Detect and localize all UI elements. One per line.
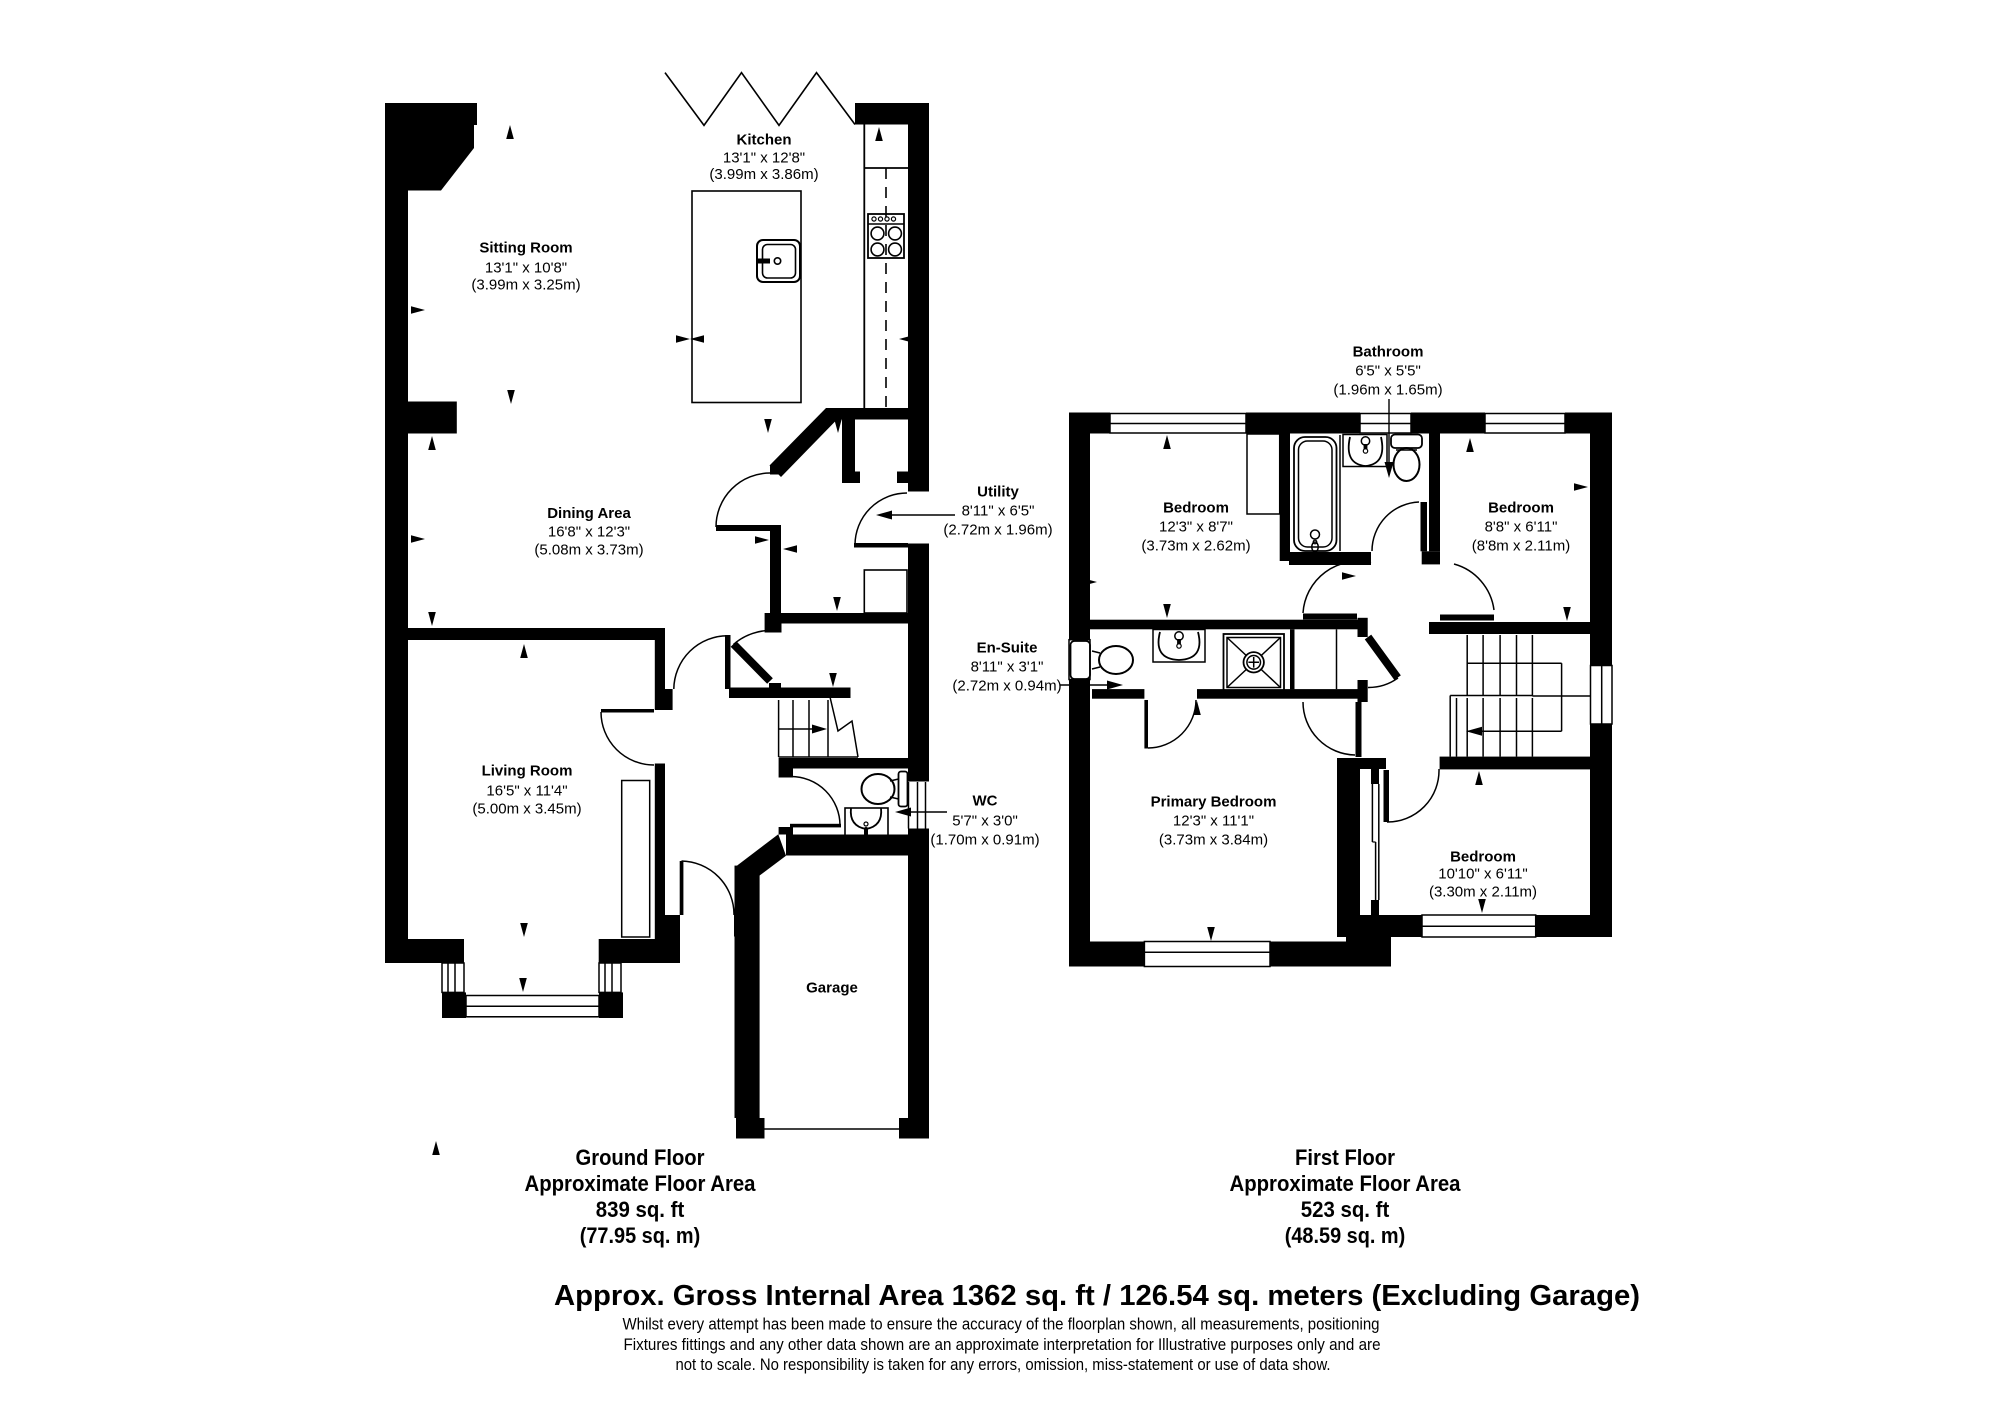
svg-text:8'11" x 6'5": 8'11" x 6'5" xyxy=(962,503,1035,520)
svg-text:16'5" x 11'4": 16'5" x 11'4" xyxy=(486,783,567,800)
svg-text:12'3" x 8'7": 12'3" x 8'7" xyxy=(1159,519,1233,536)
svg-text:Bedroom: Bedroom xyxy=(1163,500,1229,517)
svg-text:First Floor: First Floor xyxy=(1295,1145,1395,1170)
svg-text:En-Suite: En-Suite xyxy=(977,640,1038,657)
svg-text:(1.70m x 0.91m): (1.70m x 0.91m) xyxy=(930,832,1039,849)
svg-text:(3.99m x 3.86m): (3.99m x 3.86m) xyxy=(709,166,818,183)
svg-text:(5.08m x 3.73m): (5.08m x 3.73m) xyxy=(534,542,643,559)
svg-text:Approximate Floor Area: Approximate Floor Area xyxy=(525,1171,757,1196)
svg-text:13'1" x 10'8": 13'1" x 10'8" xyxy=(485,260,567,277)
svg-text:523 sq. ft: 523 sq. ft xyxy=(1301,1197,1390,1222)
svg-text:12'3" x 11'1": 12'3" x 11'1" xyxy=(1173,813,1254,830)
svg-text:Ground Floor: Ground Floor xyxy=(576,1145,705,1170)
svg-text:(3.73m x 3.84m): (3.73m x 3.84m) xyxy=(1159,832,1268,849)
svg-text:(3.30m x 2.11m): (3.30m x 2.11m) xyxy=(1429,884,1537,901)
svg-text:Bedroom: Bedroom xyxy=(1488,500,1554,517)
svg-text:Dining Area: Dining Area xyxy=(547,505,631,522)
svg-text:(3.73m x 2.62m): (3.73m x 2.62m) xyxy=(1141,538,1250,555)
svg-text:16'8" x 12'3": 16'8" x 12'3" xyxy=(548,524,630,541)
svg-text:10'10" x 6'11": 10'10" x 6'11" xyxy=(1438,866,1528,883)
svg-text:8'8" x 6'11": 8'8" x 6'11" xyxy=(1485,519,1558,536)
svg-text:6'5" x 5'5": 6'5" x 5'5" xyxy=(1355,363,1421,380)
svg-text:(2.72m x 0.94m): (2.72m x 0.94m) xyxy=(952,678,1061,695)
svg-text:(77.95 sq. m): (77.95 sq. m) xyxy=(580,1223,701,1248)
svg-text:Utility: Utility xyxy=(977,484,1019,501)
svg-text:13'1" x 12'8": 13'1" x 12'8" xyxy=(723,150,805,167)
svg-text:839 sq. ft: 839 sq. ft xyxy=(596,1197,685,1222)
svg-text:Sitting Room: Sitting Room xyxy=(479,240,572,257)
svg-text:Bedroom: Bedroom xyxy=(1450,849,1516,866)
svg-text:Fixtures fittings and any othe: Fixtures fittings and any other data sho… xyxy=(624,1336,1381,1354)
svg-text:Garage: Garage xyxy=(806,980,858,997)
svg-text:Primary Bedroom: Primary Bedroom xyxy=(1151,794,1277,811)
svg-text:Approx. Gross Internal Area 13: Approx. Gross Internal Area 1362 sq. ft … xyxy=(554,1280,1640,1312)
svg-text:(2.72m x 1.96m): (2.72m x 1.96m) xyxy=(943,522,1052,539)
svg-text:WC: WC xyxy=(973,793,998,810)
svg-text:(3.99m x 3.25m): (3.99m x 3.25m) xyxy=(471,277,580,294)
svg-text:Kitchen: Kitchen xyxy=(736,132,791,149)
svg-text:(48.59 sq. m): (48.59 sq. m) xyxy=(1285,1223,1406,1248)
svg-text:5'7" x 3'0": 5'7" x 3'0" xyxy=(952,813,1018,830)
svg-text:Living Room: Living Room xyxy=(482,763,573,780)
svg-text:(1.96m x 1.65m): (1.96m x 1.65m) xyxy=(1333,382,1442,399)
svg-text:(5.00m x 3.45m): (5.00m x 3.45m) xyxy=(472,801,581,818)
svg-text:Approximate Floor Area: Approximate Floor Area xyxy=(1230,1171,1462,1196)
svg-text:8'11" x 3'1": 8'11" x 3'1" xyxy=(971,659,1044,676)
svg-text:Whilst every attempt has been: Whilst every attempt has been made to en… xyxy=(623,1316,1380,1334)
svg-text:Bathroom: Bathroom xyxy=(1353,344,1424,361)
svg-text:not to scale. No responsibilit: not to scale. No responsibility is taken… xyxy=(676,1356,1331,1374)
svg-text:(8'8m x 2.11m): (8'8m x 2.11m) xyxy=(1472,538,1570,555)
